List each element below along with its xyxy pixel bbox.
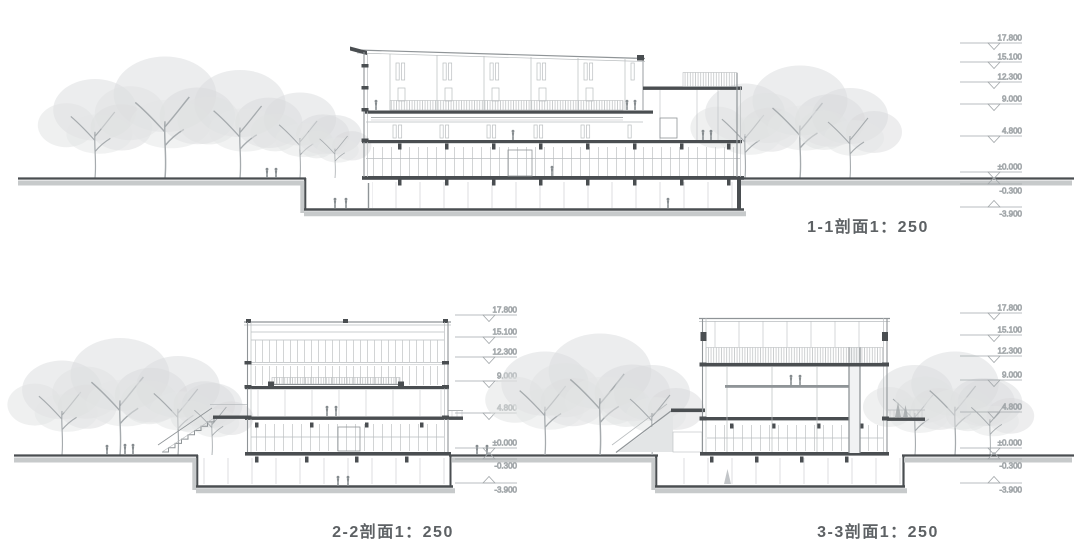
level-value: 17.800 [998, 34, 1023, 43]
tree-cluster-top-left [38, 56, 372, 178]
level-value: 9.000 [1002, 95, 1023, 104]
level-value: 15.100 [998, 53, 1023, 62]
level-value: -0.300 [999, 462, 1022, 471]
section-drawing-canvas: 17.800 15.100 12.300 9.000 4.800 ±0.000 … [0, 0, 1080, 557]
section-label-3-3: 3-3剖面1：250 [817, 522, 939, 541]
level-value: -0.300 [494, 462, 517, 471]
level-value: 4.800 [1002, 127, 1023, 136]
section-label-2-2: 2-2剖面1：250 [332, 522, 454, 541]
level-value: 4.800 [1002, 403, 1023, 412]
level-value: -0.300 [999, 187, 1022, 196]
elevation-markers-1-1: 17.800 15.100 12.300 9.000 4.800 ±0.000 … [960, 34, 1023, 219]
level-value: ±0.000 [998, 439, 1023, 448]
level-value: 12.300 [493, 348, 518, 357]
level-value: -3.900 [999, 210, 1022, 219]
level-value: ±0.000 [493, 439, 518, 448]
figures-bottom-right [790, 375, 802, 385]
level-value: -3.900 [494, 486, 517, 495]
tree-cluster-bottom-left [7, 338, 253, 455]
level-value: 17.800 [493, 306, 518, 315]
level-value: 9.000 [1002, 371, 1023, 380]
section-label-1-1: 1-1剖面1：250 [807, 217, 929, 236]
section-1-1: 17.800 15.100 12.300 9.000 4.800 ±0.000 … [18, 34, 1074, 237]
level-value: 17.800 [998, 304, 1023, 313]
level-value: 15.100 [493, 328, 518, 337]
building-1-1 [350, 47, 744, 211]
level-value: 15.100 [998, 326, 1023, 335]
level-value: -3.900 [999, 486, 1022, 495]
section-3-3: 17.800 15.100 12.300 9.000 4.800 ±0.000 … [485, 304, 1074, 542]
architectural-sections-sheet: 17.800 15.100 12.300 9.000 4.800 ±0.000 … [0, 0, 1080, 557]
level-value: 12.300 [998, 73, 1023, 82]
level-value: ±0.000 [998, 163, 1023, 172]
level-value: 12.300 [998, 347, 1023, 356]
